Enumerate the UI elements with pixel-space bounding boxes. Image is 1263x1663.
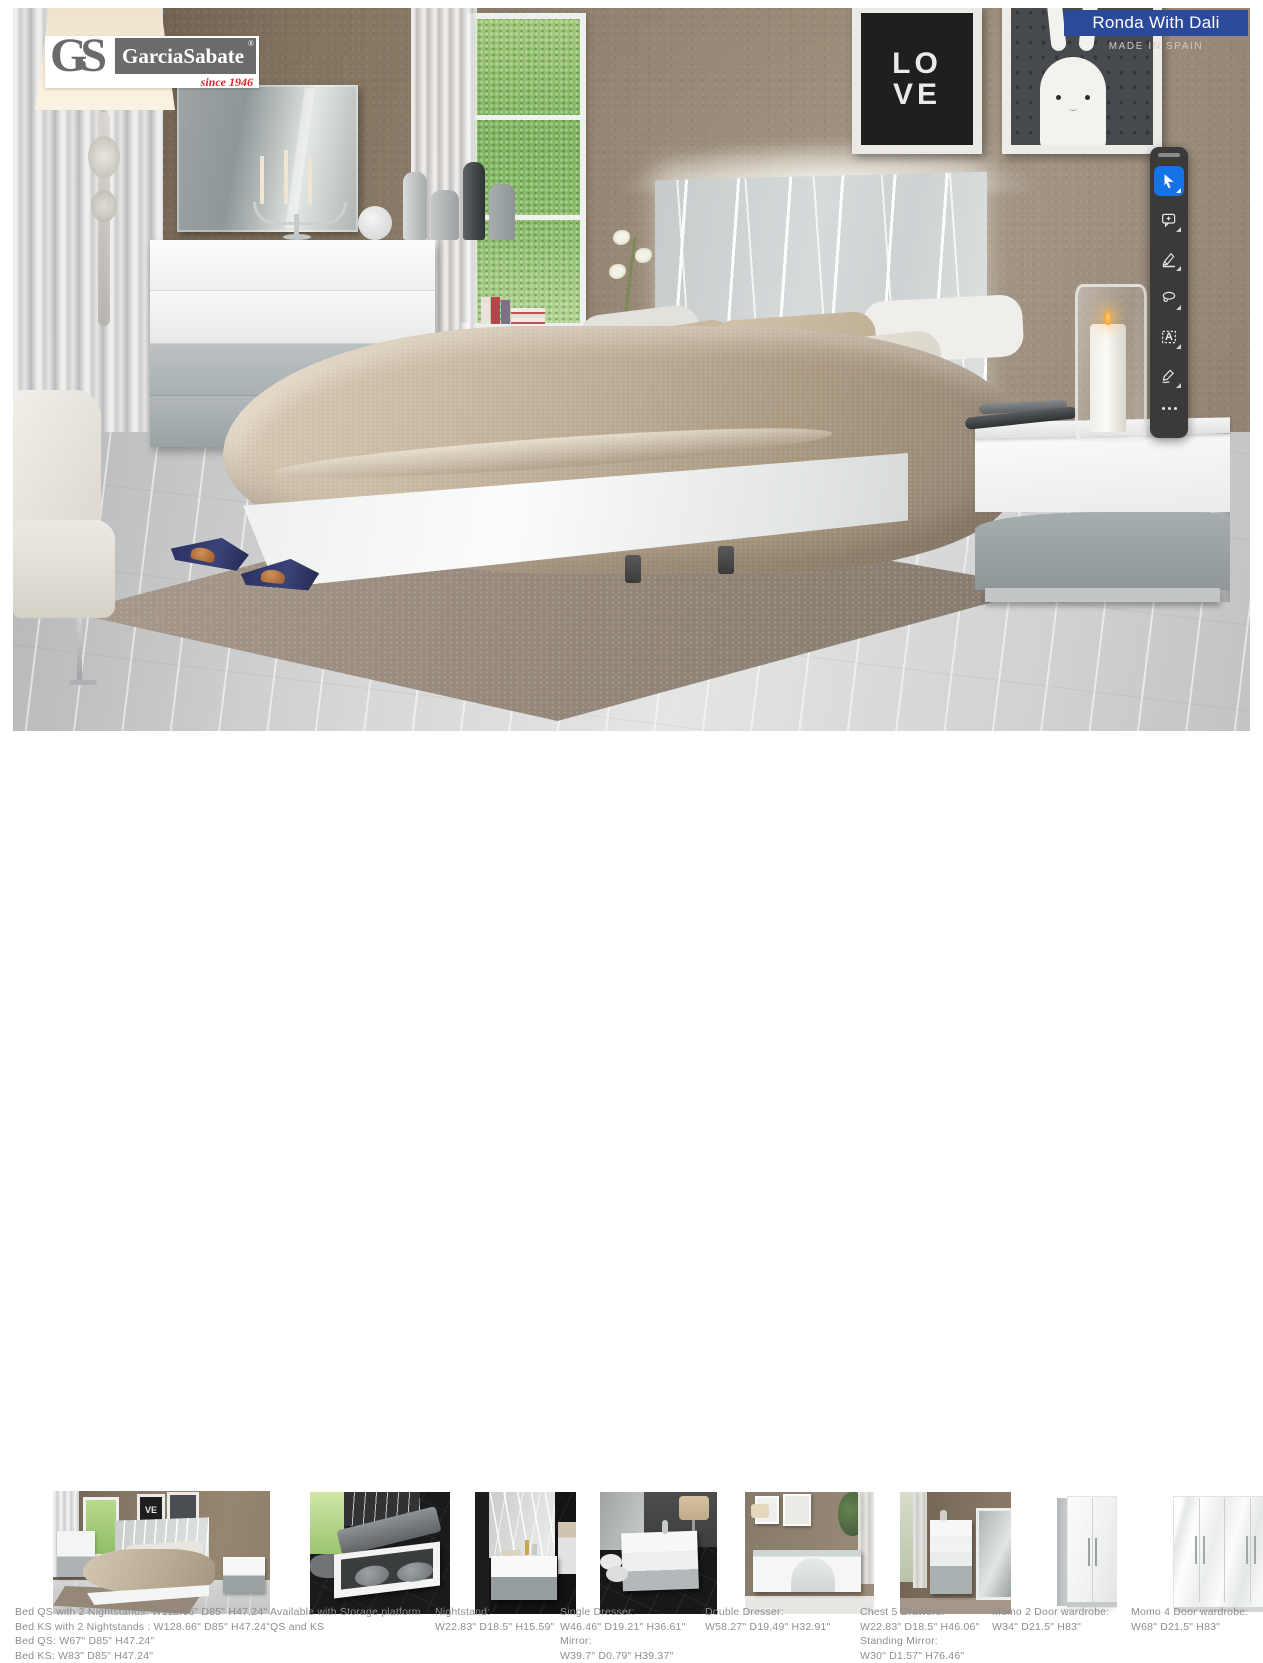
love-wall-art: LO VE <box>852 8 982 154</box>
thumb-tray <box>501 1550 521 1555</box>
thumb-lamp-shade <box>751 1504 769 1518</box>
love-art-text: LO <box>892 48 942 79</box>
select-text-tool-button[interactable]: A <box>1154 322 1184 352</box>
product-caption-chest: Chest 5 Drawers: W22.83" D18.5" H46.06" … <box>860 1605 979 1663</box>
nightstand-drawer <box>975 434 1230 512</box>
candelabra-base <box>283 234 311 240</box>
product-caption-momo-2-door: Momo 2 Door wardrobe: W34" D21.5" H83" <box>992 1605 1109 1634</box>
thumb-curtain <box>913 1492 927 1588</box>
thumb-wall-art <box>783 1494 811 1526</box>
dresser-drawer <box>150 291 435 344</box>
window-bar <box>474 115 580 120</box>
dresser-drawer <box>150 240 435 291</box>
nightstand <box>975 420 1230 606</box>
floor-lamp-base <box>91 190 117 222</box>
bunny-eye <box>1085 95 1090 100</box>
thumb-door-seam <box>1199 1498 1200 1602</box>
thumb-door-handle <box>1195 1536 1197 1564</box>
flyout-corner-icon <box>1176 305 1181 310</box>
thumb-stored-item <box>397 1560 433 1583</box>
window-foliage <box>474 19 580 329</box>
thumb-door-handle <box>1095 1538 1097 1566</box>
flyout-corner-icon <box>1176 188 1181 193</box>
brand-logo: GS GarciaSabate ® since 1946 <box>45 36 259 88</box>
logo-tagline: since 1946 <box>201 75 253 90</box>
window <box>468 13 586 335</box>
armchair-back <box>13 390 101 532</box>
bunny-body <box>1040 57 1106 151</box>
highlight-tool-button[interactable] <box>1154 244 1184 274</box>
bunny-eye <box>1056 95 1061 100</box>
armchair-seat <box>13 520 115 618</box>
thumb-door-handle <box>1254 1536 1256 1564</box>
thumb-art-text: VE <box>145 1506 157 1515</box>
made-in-label: MADE IN SPAIN <box>1064 41 1248 52</box>
nightstand-drawer <box>975 512 1230 590</box>
thumb-curved-door <box>791 1558 835 1592</box>
thumbnail-double-dresser <box>745 1492 874 1614</box>
thumb-standing-mirror <box>976 1508 1011 1600</box>
product-title-banner: Ronda With Dali <box>1064 10 1248 36</box>
thumbnail-bed: VE <box>53 1491 270 1614</box>
thumb-wardrobe-side <box>1057 1498 1067 1606</box>
thumb-storage-interior <box>341 1548 433 1589</box>
vase <box>431 190 459 240</box>
thumb-door-seam <box>1224 1498 1225 1602</box>
bed-foot <box>625 555 641 583</box>
round-vase <box>358 206 392 240</box>
product-caption-single-dresser: Single Dresser: W46.46" D19.21" H36.61" … <box>560 1605 686 1663</box>
product-caption-nightstand: Nightstand: W22.83" D18.5" H15.59" <box>435 1605 554 1634</box>
product-caption-bed: Bed QS with 2 Nightstands: W112.66" D85"… <box>15 1605 270 1663</box>
pillar-candle <box>1090 324 1126 432</box>
ellipsis-dot-icon <box>1162 407 1165 410</box>
thumb-wardrobe <box>1057 1496 1117 1608</box>
logo-name: GarciaSabate <box>122 44 244 69</box>
thumb-door-handle <box>1203 1536 1205 1564</box>
floor-lamp-base <box>88 136 120 178</box>
product-caption-momo-4-door: Momo 4 Door wardrobe: W68" D21.5" H83" <box>1131 1605 1248 1634</box>
thumbnail-storage-platform <box>310 1492 450 1614</box>
thumb-nightstand <box>491 1556 557 1600</box>
ellipsis-dot-icon <box>1168 407 1171 410</box>
thumb-lamp-shade <box>679 1496 709 1520</box>
candelabra-arms <box>253 202 347 225</box>
book <box>481 297 490 324</box>
fill-and-sign-tool-button[interactable] <box>1154 361 1184 391</box>
flyout-corner-icon <box>1176 383 1181 388</box>
thumb-stool <box>606 1566 628 1582</box>
book <box>491 297 500 324</box>
logo-band: GarciaSabate ® <box>115 38 256 74</box>
thumb-door-seam <box>1250 1498 1251 1602</box>
thumb-headboard <box>489 1492 555 1558</box>
thumbnail-momo-4-door-wardrobe <box>1171 1491 1263 1615</box>
product-caption-double-dresser: Double Dresser: W58.27" D19.49" H32.91" <box>705 1605 831 1634</box>
thumb-stored-item <box>355 1564 389 1588</box>
floating-annotation-toolbar: A <box>1150 147 1188 438</box>
product-caption-storage-platform: Available with Storage platform QS and K… <box>270 1605 421 1634</box>
armchair-leg <box>77 616 82 682</box>
vase <box>489 184 515 240</box>
thumb-chest <box>930 1520 972 1594</box>
add-comment-tool-button[interactable] <box>1154 205 1184 235</box>
lasso-tool-button[interactable] <box>1154 283 1184 313</box>
thumb-door-handle <box>1088 1538 1090 1566</box>
thumb-bed-edge <box>558 1522 576 1574</box>
vase <box>403 172 427 240</box>
thumb-vase <box>940 1510 947 1522</box>
thumbnail-momo-2-door-wardrobe <box>1054 1491 1120 1615</box>
select-tool-button[interactable] <box>1154 166 1184 196</box>
hero-room-photo: LO VE <box>13 8 1250 731</box>
vase <box>463 162 485 240</box>
thumb-bottle <box>532 1544 537 1555</box>
armchair-foot <box>69 680 97 685</box>
thumbnail-chest <box>900 1492 1011 1614</box>
bunny-mouth <box>1069 105 1077 111</box>
flyout-corner-icon <box>1176 344 1181 349</box>
thumb-door-seam <box>1092 1498 1093 1602</box>
logo-initials: GS <box>50 32 100 80</box>
thumb-dresser <box>753 1550 861 1592</box>
book <box>501 300 510 324</box>
thumbnail-single-dresser <box>600 1492 717 1614</box>
flyout-corner-icon <box>1176 266 1181 271</box>
candle <box>308 158 312 204</box>
toolbar-drag-handle[interactable] <box>1158 153 1180 157</box>
thumbnail-nightstand <box>475 1492 576 1614</box>
thumb-bottle <box>662 1520 668 1534</box>
thumb-bottle <box>525 1540 529 1555</box>
love-art-text: VE <box>893 79 941 110</box>
thumb-dresser <box>621 1531 699 1592</box>
nightstand-plinth <box>985 588 1220 602</box>
thumb-wall <box>475 1492 489 1614</box>
candle-flame <box>1104 310 1112 325</box>
more-tools-button[interactable] <box>1154 400 1184 416</box>
thumb-window <box>900 1492 913 1582</box>
thumb-nightstand <box>223 1557 265 1593</box>
candelabra-stem <box>294 214 299 236</box>
product-strip: VE <box>0 731 1263 927</box>
flyout-corner-icon <box>1176 227 1181 232</box>
candle <box>284 150 288 204</box>
thumb-wardrobe <box>1173 1496 1263 1608</box>
ellipsis-dot-icon <box>1174 407 1177 410</box>
registered-mark: ® <box>248 39 254 48</box>
bed-foot <box>718 546 734 574</box>
thumb-door-handle <box>1246 1536 1248 1564</box>
page-title: Ronda With Dali <box>1092 13 1219 33</box>
candle <box>260 156 264 204</box>
book-stack <box>511 308 545 324</box>
